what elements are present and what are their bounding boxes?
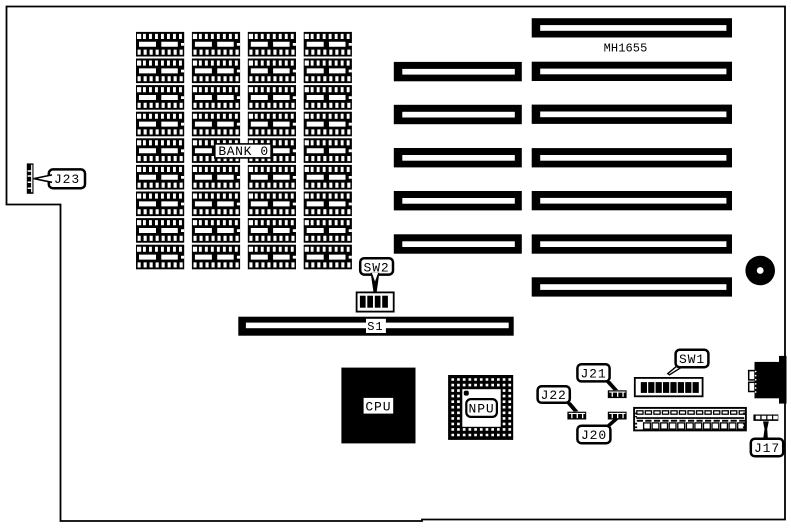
svg-text:J22: J22 [541,388,567,403]
svg-text:BANK 0: BANK 0 [218,144,268,159]
svg-text:J21: J21 [580,366,606,381]
svg-text:NPU: NPU [469,402,495,417]
svg-text:MH1655: MH1655 [604,42,648,56]
svg-text:J23: J23 [54,172,80,187]
svg-text:SW1: SW1 [679,352,705,367]
svg-text:J17: J17 [754,441,780,456]
svg-text:S1: S1 [367,320,383,334]
svg-text:SW2: SW2 [364,260,390,275]
svg-text:J20: J20 [581,428,607,443]
svg-text:CPU: CPU [365,400,391,415]
